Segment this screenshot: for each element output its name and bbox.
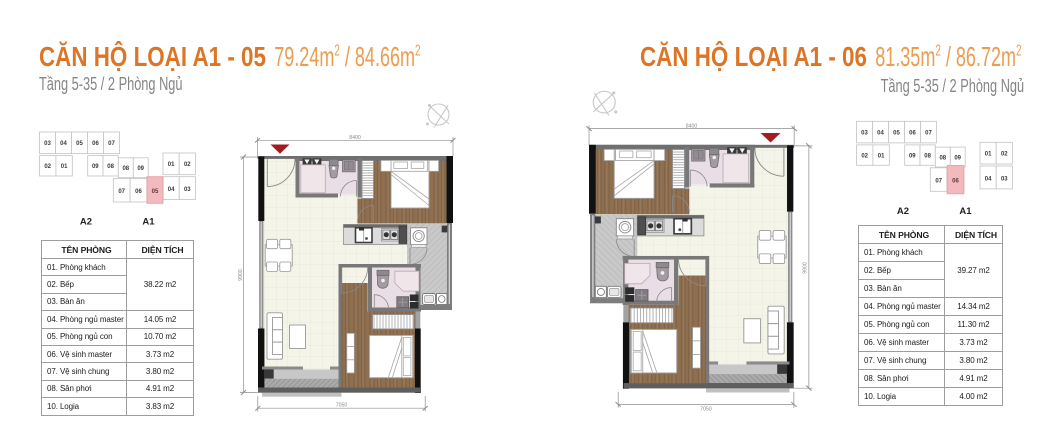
svg-text:02: 02 xyxy=(184,162,191,168)
svg-text:01: 01 xyxy=(61,164,68,170)
svg-text:A2: A2 xyxy=(897,206,909,217)
svg-text:06: 06 xyxy=(952,178,959,184)
svg-text:02: 02 xyxy=(44,164,51,170)
svg-text:05: 05 xyxy=(152,189,159,195)
svg-text:03: 03 xyxy=(44,141,51,147)
svg-text:7050: 7050 xyxy=(700,407,712,413)
svg-text:9900: 9900 xyxy=(803,262,809,274)
svg-text:7050: 7050 xyxy=(336,403,348,409)
svg-text:08: 08 xyxy=(122,166,129,172)
svg-text:08: 08 xyxy=(107,164,114,170)
svg-text:A2: A2 xyxy=(80,217,92,228)
svg-text:8400: 8400 xyxy=(686,124,698,130)
svg-text:06: 06 xyxy=(135,189,142,195)
svg-text:01: 01 xyxy=(168,162,175,168)
svg-text:A1: A1 xyxy=(959,206,972,217)
svg-text:07: 07 xyxy=(118,189,125,195)
svg-text:09: 09 xyxy=(92,164,99,170)
svg-text:09: 09 xyxy=(137,166,144,172)
svg-text:05: 05 xyxy=(76,141,83,147)
svg-text:04: 04 xyxy=(168,187,175,193)
svg-text:07: 07 xyxy=(108,141,115,147)
svg-text:04: 04 xyxy=(60,141,67,147)
svg-text:06: 06 xyxy=(92,141,99,147)
svg-text:A1: A1 xyxy=(142,217,155,228)
svg-text:03: 03 xyxy=(184,187,191,193)
svg-text:8400: 8400 xyxy=(349,135,361,141)
svg-text:9900: 9900 xyxy=(238,269,244,281)
